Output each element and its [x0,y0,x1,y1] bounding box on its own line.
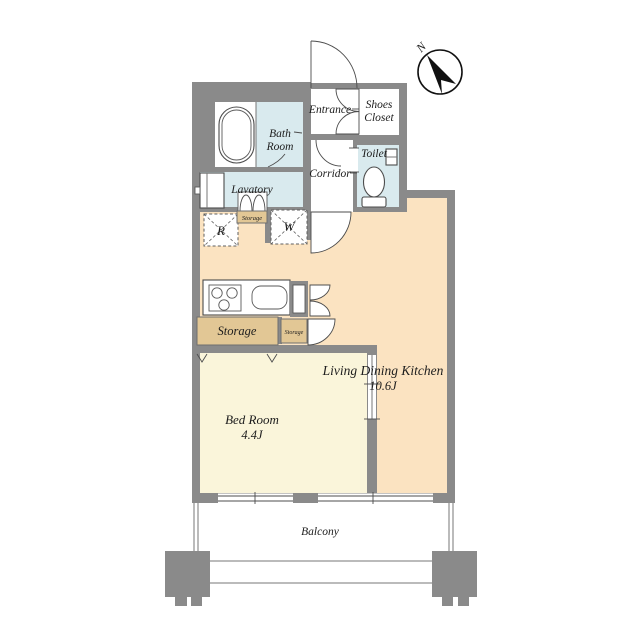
balcony-pillar-right-tab1 [442,597,453,606]
toilet-bowl [364,167,385,197]
entrance-label: Entrance [308,104,351,116]
floor-plan-page: N Entrance Shoes Closet Bath Room Lavato… [0,0,640,640]
toilet-label: Toilet [361,148,388,160]
bedroom-size-label: 4.4J [241,428,264,442]
entrance-door [311,41,357,88]
ldk-size-label: 10.6J [369,379,398,393]
storage-laundry-label: Storage [242,215,262,222]
floor-plan-drawing: N Entrance Shoes Closet Bath Room Lavato… [0,0,640,640]
balcony-label: Balcony [301,526,340,538]
windows [218,492,433,504]
stove-burner-1 [212,288,222,298]
balcony-pillar-left-tab2 [191,597,202,606]
bathtub-inner [222,110,251,160]
storage-kitchen-large-label: Storage [218,324,257,338]
refrigerator-label: R [216,223,225,238]
washer-label: W [284,219,296,234]
shoes-closet-label-line2: Closet [364,112,394,124]
bedroom-window [218,494,293,504]
kitchen-end-cabinet [293,285,305,313]
ldk-label: Living Dining Kitchen [322,363,444,378]
kitchen [203,280,330,317]
balcony-pillar-left [165,551,210,597]
toilet-door-gap [352,148,358,172]
compass-north-label: N [413,39,430,56]
balcony-pillar-left-tab1 [175,597,187,606]
toilet-tank [362,197,386,207]
balcony-pillar-right-tab2 [458,597,469,606]
balcony-pillar-right [432,551,477,597]
entrance-door-swing-arc [311,41,357,88]
ldk-window [318,494,433,504]
wall-bedroom-top [192,345,377,353]
shoes-closet-label-line1: Shoes [366,99,393,111]
vanity-sink [200,173,224,208]
kitchen-sink [252,286,287,309]
bath-room-label-line1: Bath [269,128,291,140]
bedroom-label: Bed Room [225,412,279,427]
ldk-floor-top-right [407,198,447,214]
compass: N [413,39,462,94]
bath-room-label-line2: Room [266,141,294,153]
north-arrow-icon [427,55,456,94]
storage-kitchen-small-label: Storage [285,330,304,336]
corridor-label: Corridor [309,168,351,180]
stove-burner-2 [227,288,237,298]
balcony [165,503,477,606]
stove-burner-3 [219,300,229,310]
lavatory-label: Lavatory [230,184,273,196]
vanity-handle [195,187,200,194]
